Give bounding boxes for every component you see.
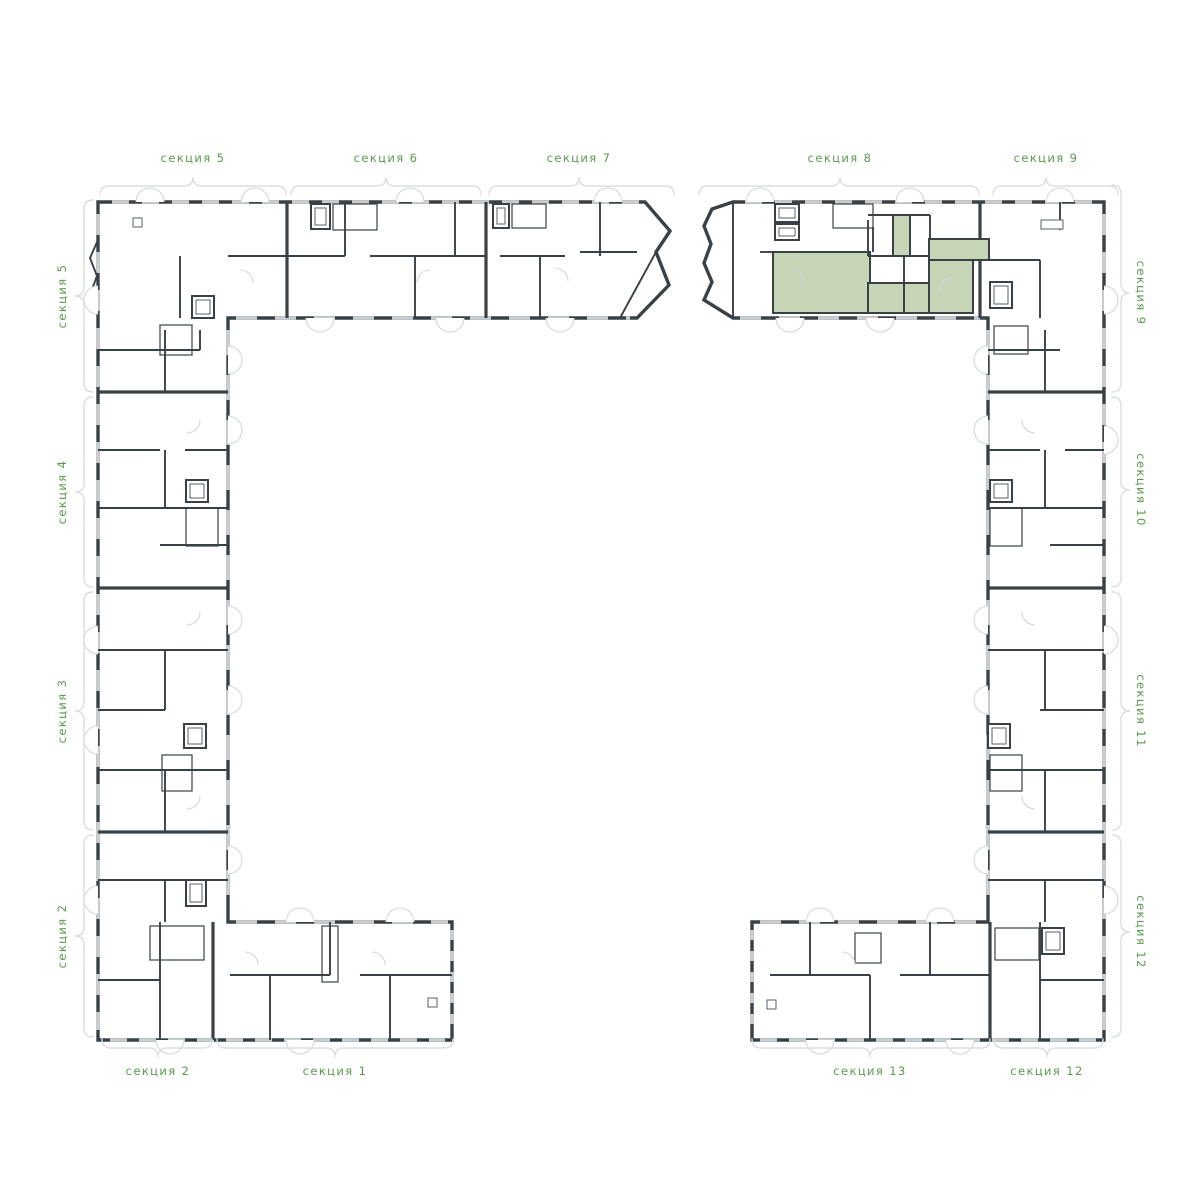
section-label-bottom-2: секция 2 (126, 1064, 191, 1078)
right-building-outline (704, 202, 1104, 1040)
left-building-outline (98, 202, 670, 1040)
section-label-top-5: секция 5 (161, 151, 226, 165)
bracket-top-sec8 (699, 177, 979, 195)
section-label-top-7: секция 7 (547, 151, 612, 165)
section-label-left-3: секция 3 (55, 679, 69, 744)
highlighted-room[interactable] (904, 283, 929, 313)
section-label-bottom-13: секция 13 (833, 1064, 906, 1078)
section-label-bottom-1: секция 1 (303, 1064, 368, 1078)
section-label-right-11: секция 11 (1134, 674, 1148, 747)
highlighted-room[interactable] (893, 215, 910, 256)
section-label-top-6: секция 6 (354, 151, 419, 165)
closet-box (1041, 220, 1063, 229)
highlighted-room[interactable] (929, 260, 973, 313)
door-arcs (187, 268, 1035, 965)
section-label-left-2: секция 2 (55, 904, 69, 969)
floor-plan-page: секция 5 секция 6 секция 7 секция 8 секц… (0, 0, 1200, 1200)
bracket-right-sec12 (1112, 835, 1130, 1037)
right-building (704, 202, 1104, 1040)
section-label-left-4: секция 4 (55, 460, 69, 525)
section-label-bottom-12: секция 12 (1010, 1064, 1083, 1078)
section-label-left-5: секция 5 (55, 264, 69, 329)
left-building (90, 202, 670, 1040)
bracket-right-sec11 (1112, 592, 1130, 830)
bracket-left-sec2 (75, 835, 93, 1037)
section-label-top-8: секция 8 (808, 151, 873, 165)
section-label-top-9: секция 9 (1014, 151, 1079, 165)
section-label-right-10: секция 10 (1134, 453, 1148, 526)
bracket-top-sec6 (291, 177, 481, 195)
closet-box (767, 1000, 776, 1009)
bracket-left-sec4 (75, 397, 93, 587)
closet-box (133, 218, 142, 227)
highlighted-room[interactable] (773, 252, 870, 313)
bracket-right-sec9 (1112, 185, 1130, 392)
closet-box (428, 998, 437, 1007)
bracket-top-sec7 (489, 177, 674, 195)
section-label-right-9: секция 9 (1134, 261, 1148, 326)
highlighted-room[interactable] (929, 239, 989, 260)
section-label-right-12: секция 12 (1134, 895, 1148, 968)
highlighted-room[interactable] (868, 283, 904, 313)
floor-plan-drawing (0, 0, 1200, 1200)
bracket-right-sec10 (1112, 397, 1130, 587)
